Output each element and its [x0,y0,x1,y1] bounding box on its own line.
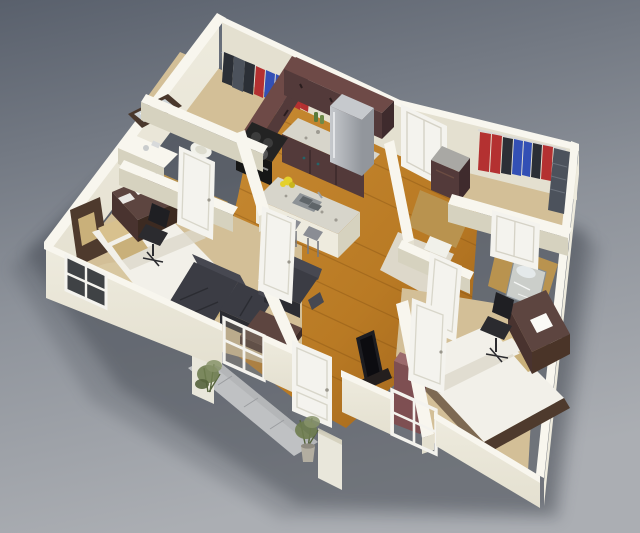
bedroom-right-door [408,298,448,394]
bedroom-left-door [258,206,296,304]
floorplan-svg [0,0,640,533]
refrigerator [330,94,374,176]
plant-pot [301,443,315,462]
bathroom-left-door [177,146,215,240]
floorplan-render [0,0,640,533]
